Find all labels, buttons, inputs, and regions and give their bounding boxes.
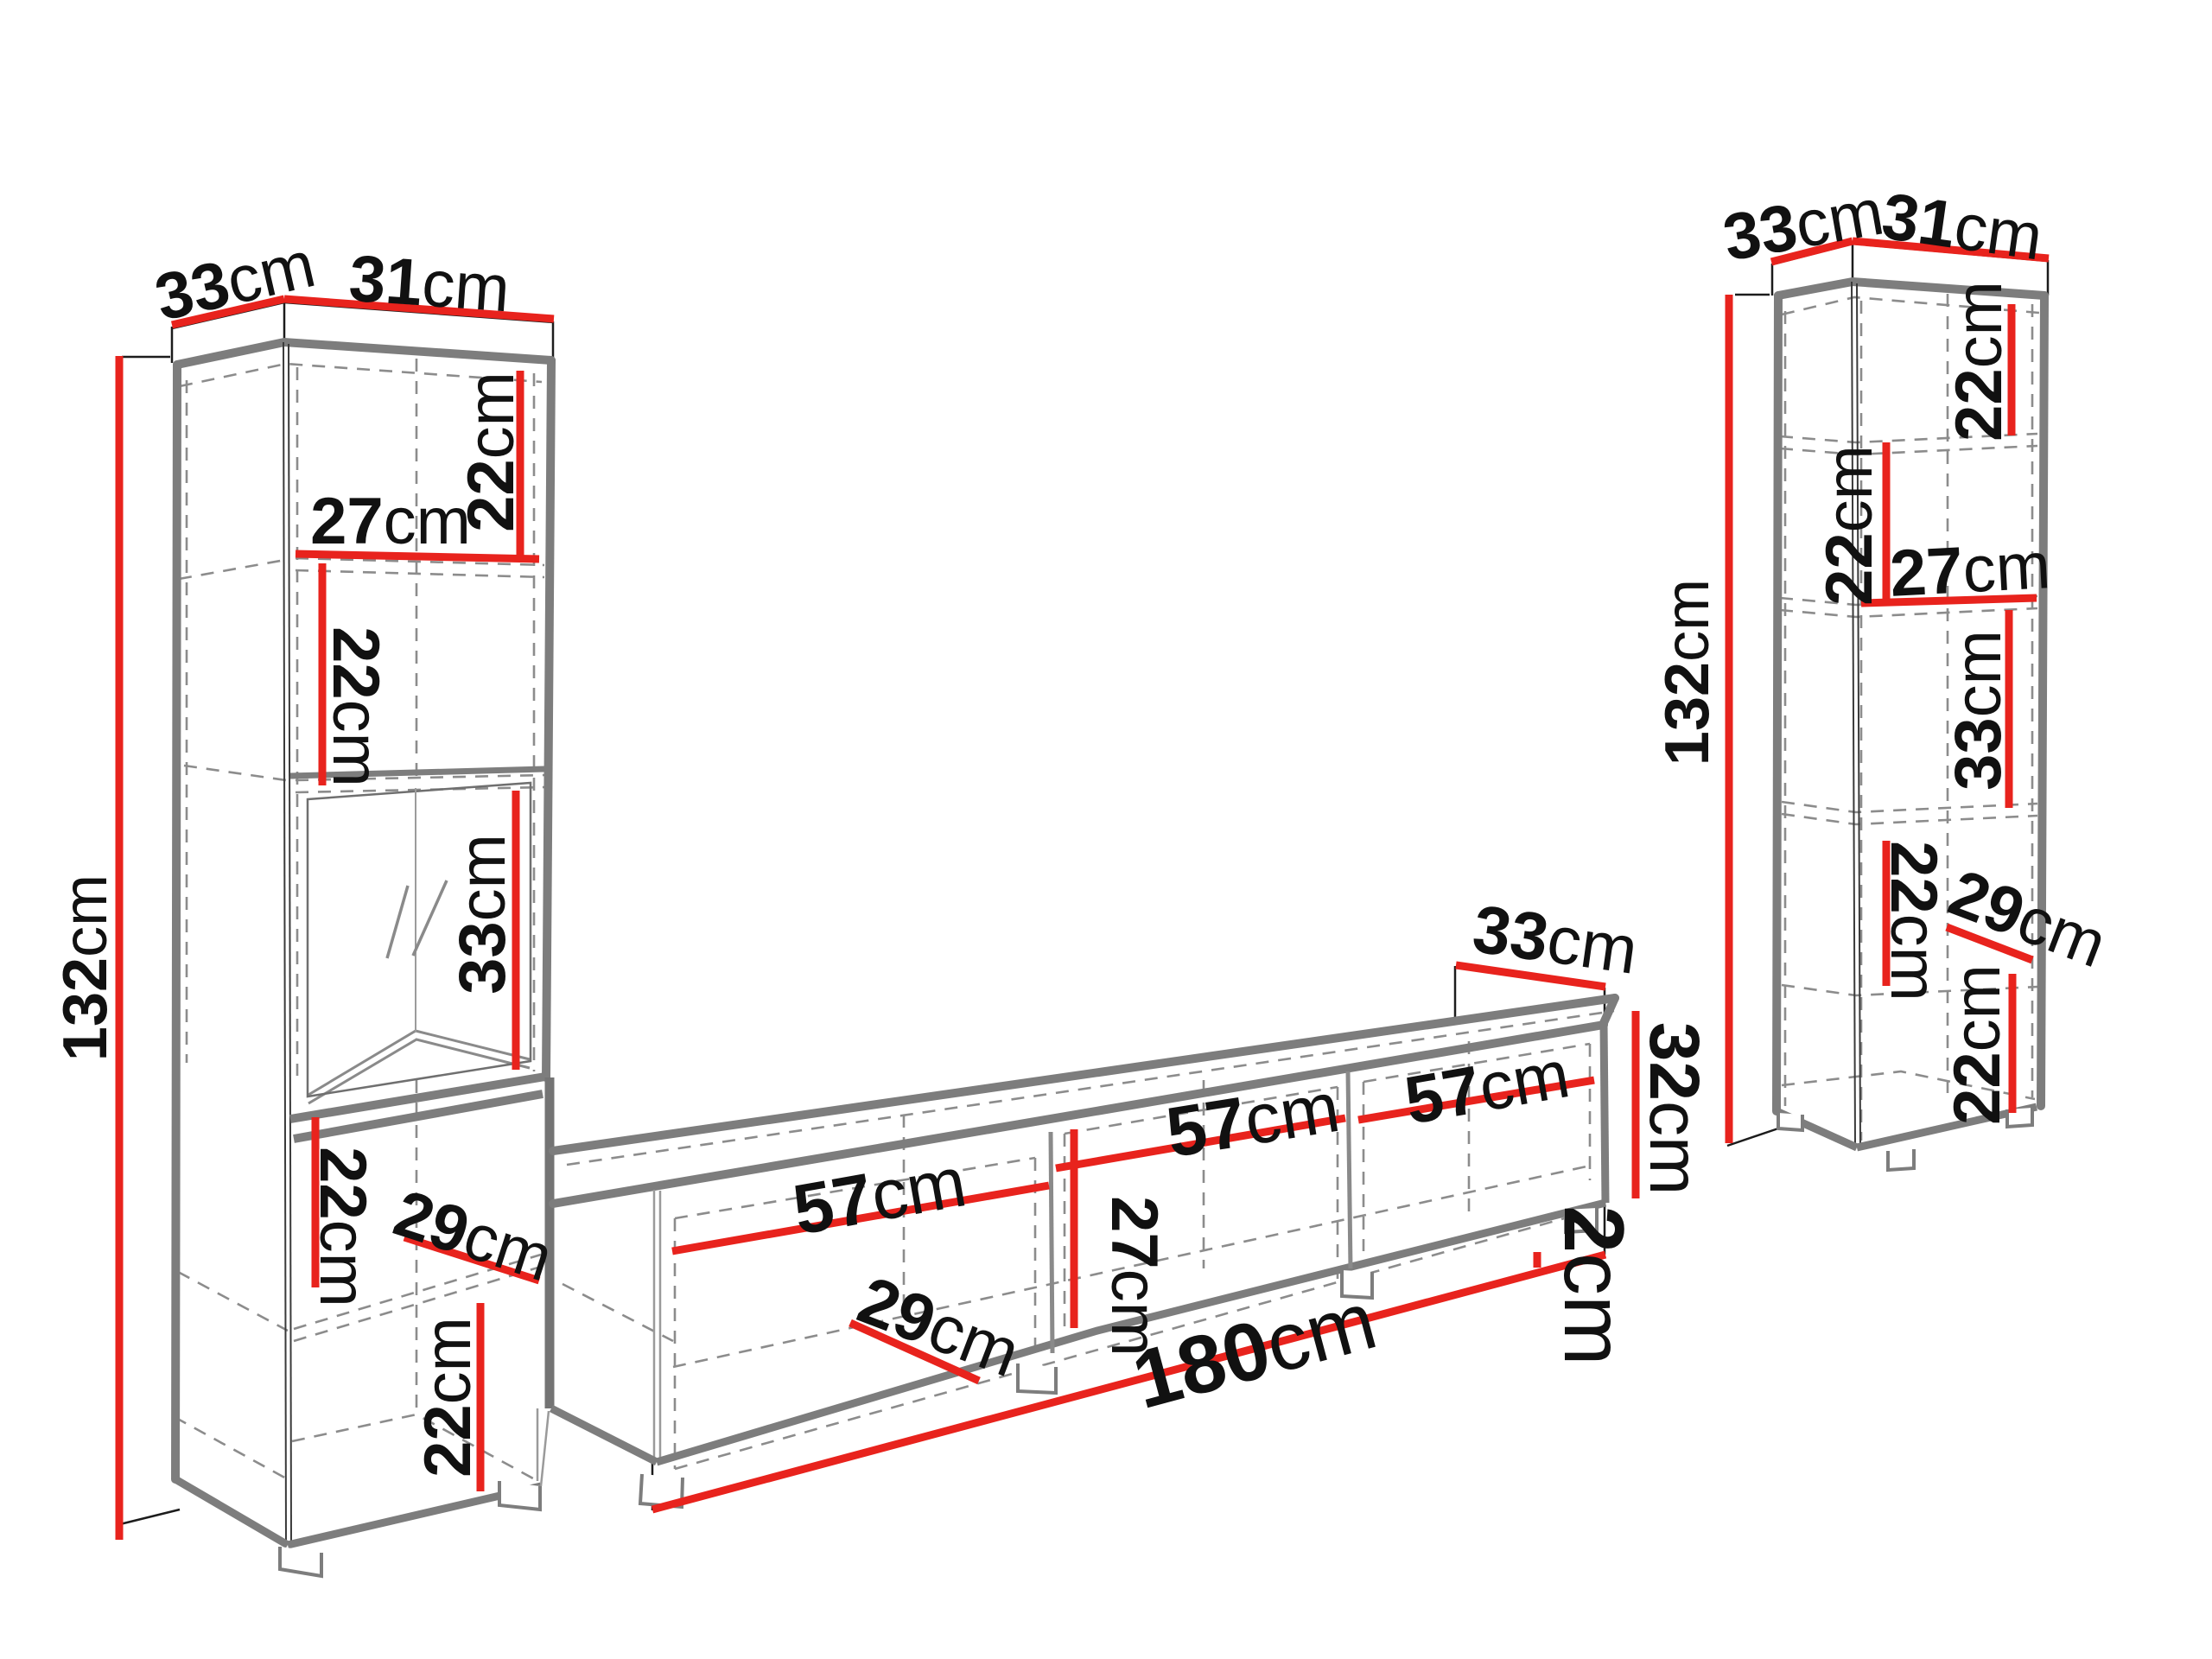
svg-text:31cm: 31cm [346, 241, 512, 326]
svg-text:32cm: 32cm [1636, 1022, 1714, 1196]
svg-text:132cm: 132cm [51, 874, 120, 1061]
svg-text:22cm: 22cm [320, 626, 393, 787]
svg-text:27cm: 27cm [310, 485, 471, 558]
svg-text:27cm: 27cm [1888, 529, 2052, 611]
svg-text:22cm: 22cm [1941, 964, 2014, 1125]
svg-text:22cm: 22cm [1813, 445, 1886, 606]
svg-text:22cm: 22cm [411, 1317, 485, 1478]
svg-text:2cm: 2cm [1547, 1205, 1642, 1365]
svg-text:22cm: 22cm [307, 1147, 380, 1307]
svg-text:33cm: 33cm [1942, 630, 2015, 791]
svg-text:22cm: 22cm [1942, 281, 2016, 442]
svg-text:33cm: 33cm [446, 834, 519, 995]
svg-text:132cm: 132cm [1653, 579, 1722, 766]
